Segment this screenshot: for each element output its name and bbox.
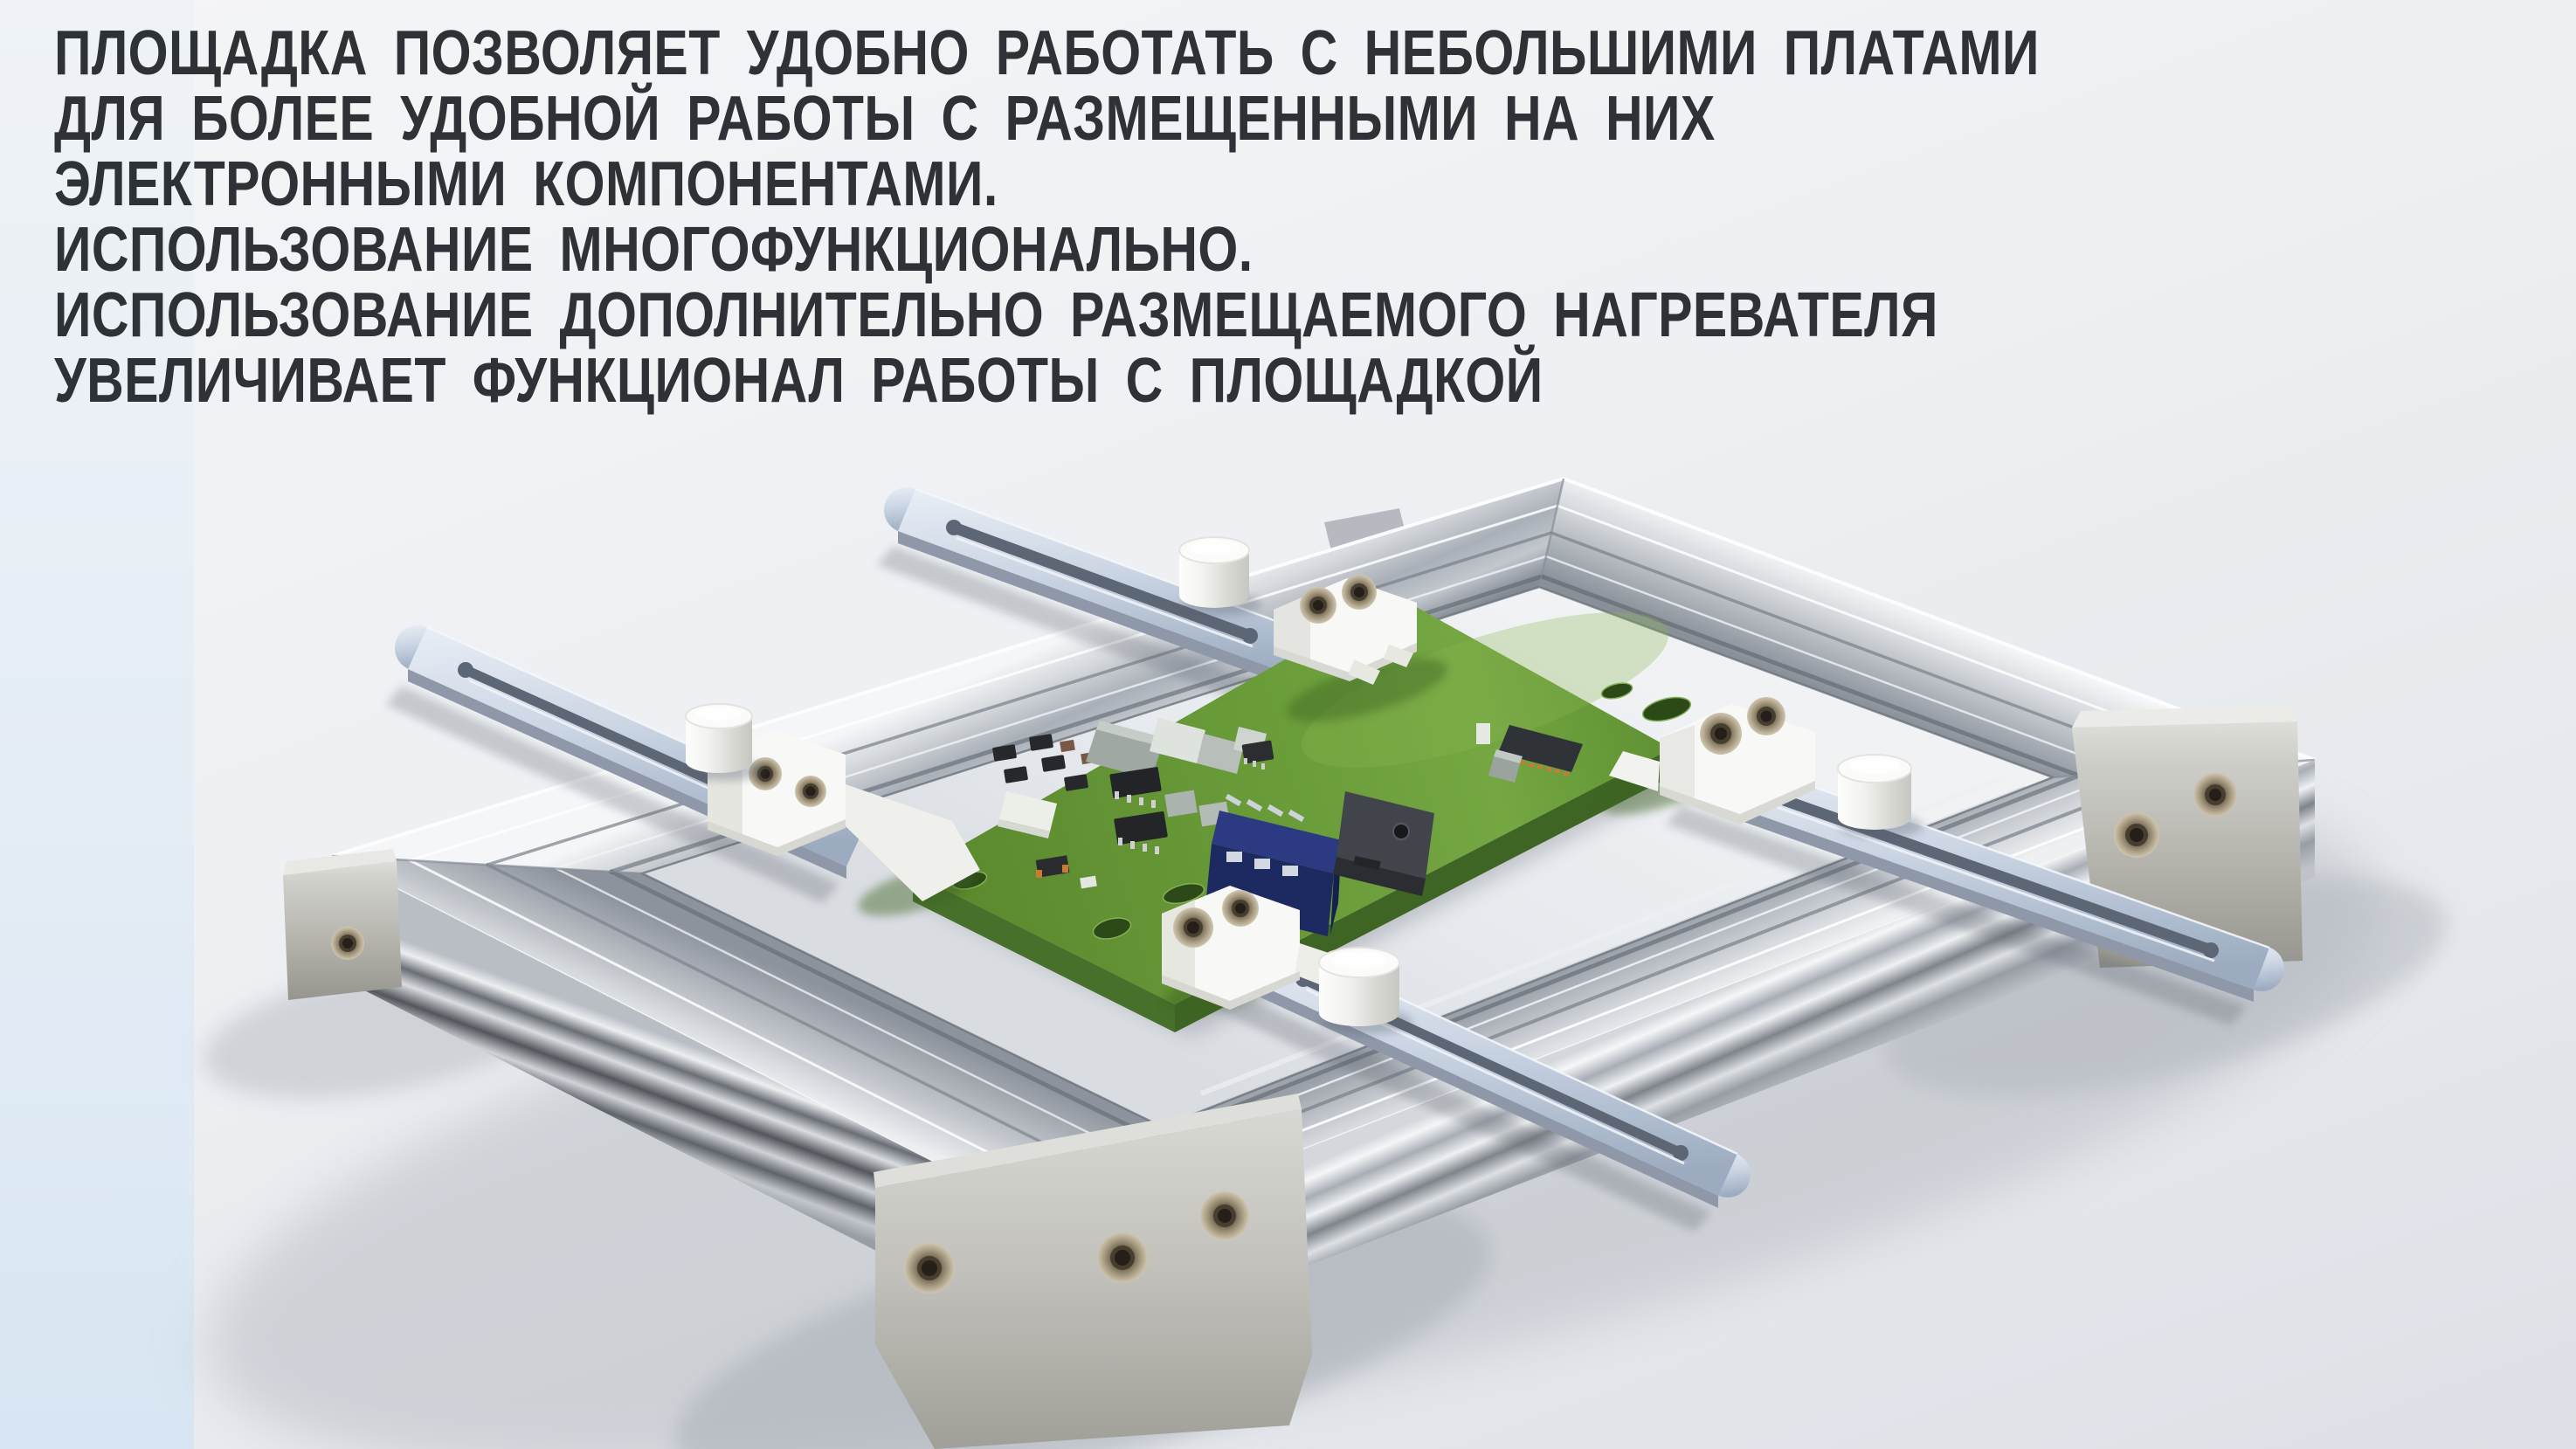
slide: ПЛОЩАДКА ПОЗВОЛЯЕТ УДОБНО РАБОТАТЬ С НЕБ… [0,0,2576,1449]
corner-foot-left [283,849,402,1000]
thumbscrew-left [686,704,763,781]
thumbscrew-right [1838,755,1923,838]
cad-render [0,0,2576,1449]
thumbscrew-top [1179,537,1261,616]
thumbscrew-bottom [1319,948,1412,1034]
